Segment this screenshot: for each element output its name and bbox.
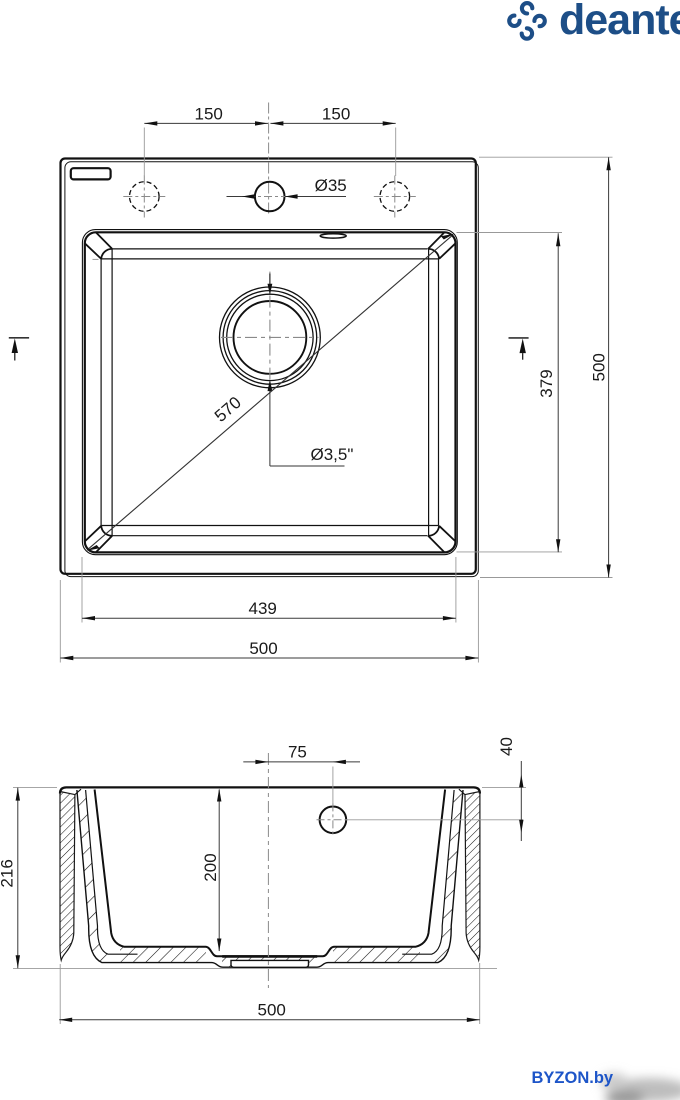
svg-text:500: 500 xyxy=(589,353,608,381)
svg-text:200: 200 xyxy=(201,853,220,881)
svg-text:570: 570 xyxy=(211,393,245,426)
svg-text:500: 500 xyxy=(249,639,277,658)
svg-text:Ø35: Ø35 xyxy=(315,176,347,195)
svg-text:379: 379 xyxy=(537,369,556,397)
svg-text:439: 439 xyxy=(249,599,277,618)
svg-text:40: 40 xyxy=(497,737,516,756)
svg-text:150: 150 xyxy=(195,105,223,124)
svg-text:Ø3,5": Ø3,5" xyxy=(311,445,354,464)
svg-text:150: 150 xyxy=(322,105,350,124)
svg-text:75: 75 xyxy=(288,742,307,761)
svg-text:500: 500 xyxy=(258,1001,286,1020)
svg-text:216: 216 xyxy=(0,859,16,887)
svg-text:BYZON.by: BYZON.by xyxy=(532,1069,614,1087)
svg-text:deante: deante xyxy=(559,0,680,44)
